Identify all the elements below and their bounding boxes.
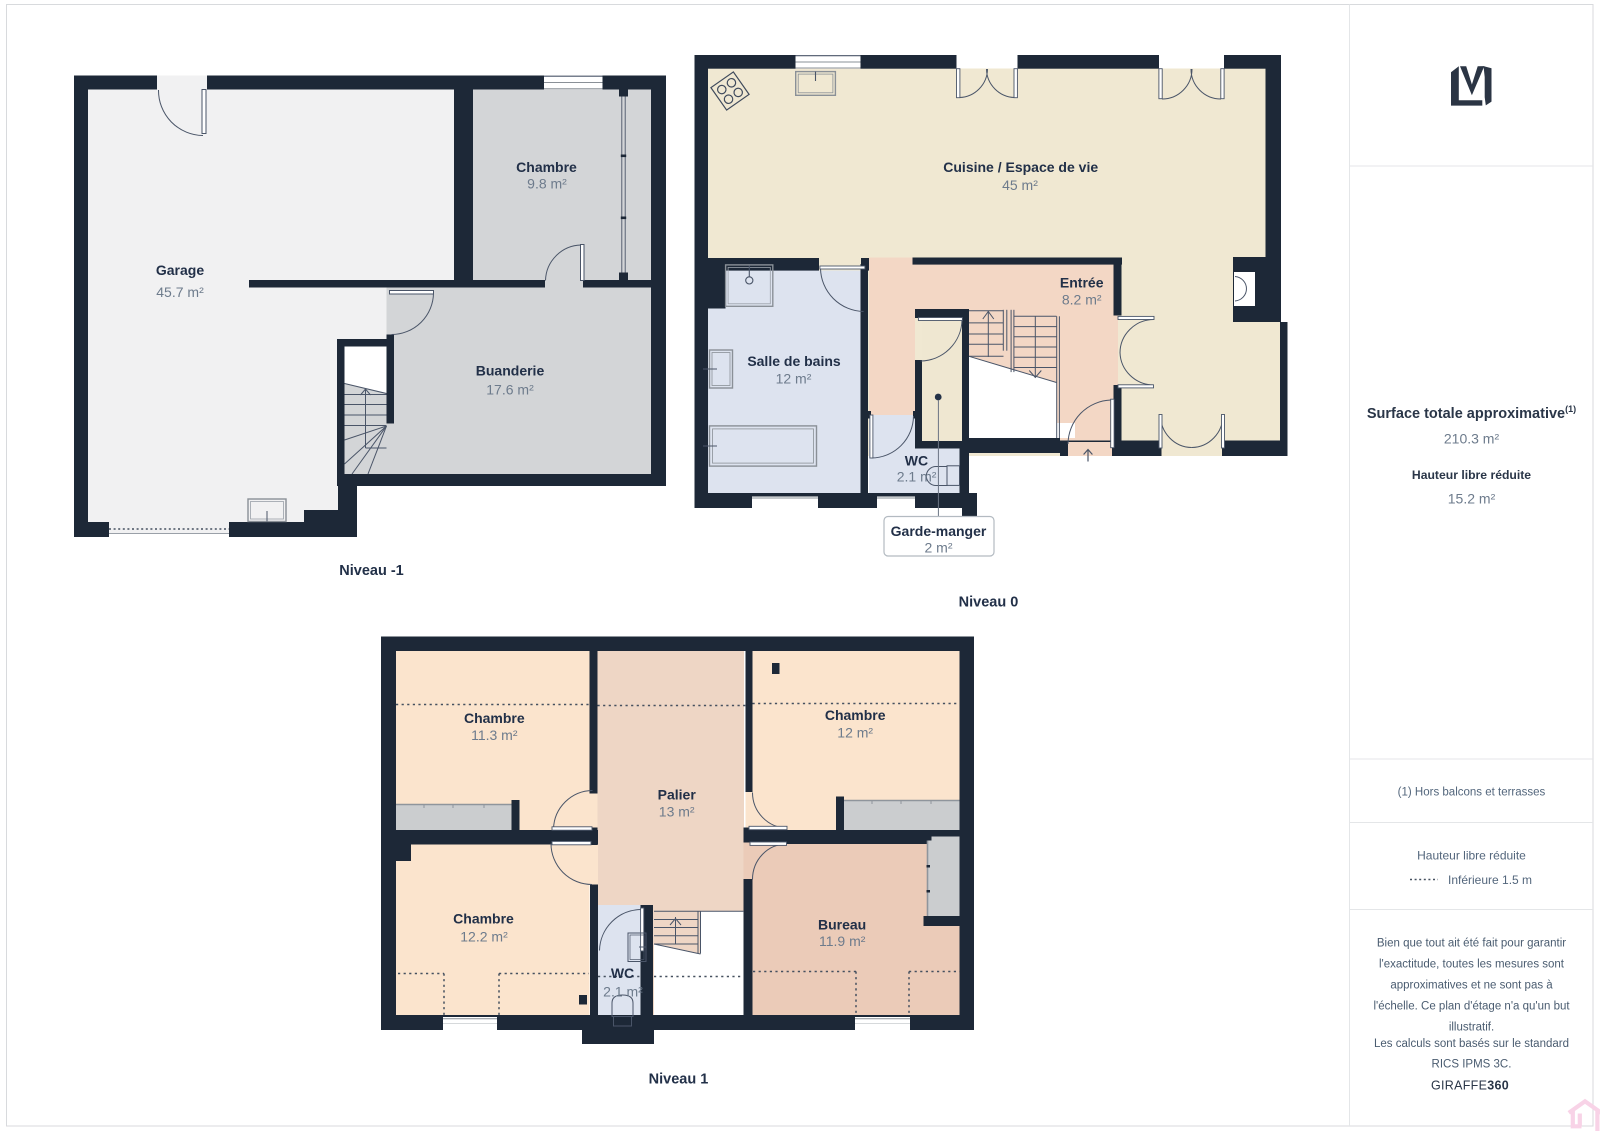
svg-text:Niveau 0: Niveau 0 xyxy=(959,595,1019,611)
svg-text:8.2 m²: 8.2 m² xyxy=(1062,292,1102,308)
svg-text:11.3 m²: 11.3 m² xyxy=(471,727,518,743)
svg-text:Hauteur libre réduite: Hauteur libre réduite xyxy=(1417,849,1526,863)
svg-text:Entrée: Entrée xyxy=(1060,275,1104,291)
svg-text:Bureau: Bureau xyxy=(818,917,866,933)
svg-text:9.8 m²: 9.8 m² xyxy=(527,176,567,192)
svg-text:(1) Hors balcons et terrasses: (1) Hors balcons et terrasses xyxy=(1398,787,1546,799)
svg-text:2 m²: 2 m² xyxy=(925,540,953,556)
svg-text:Buanderie: Buanderie xyxy=(476,363,545,379)
svg-text:2.1 m²: 2.1 m² xyxy=(897,469,937,485)
svg-text:Hauteur libre réduite: Hauteur libre réduite xyxy=(1412,468,1531,482)
svg-text:Niveau 1: Niveau 1 xyxy=(649,1072,709,1088)
svg-text:Chambre: Chambre xyxy=(453,911,514,927)
svg-text:Garage: Garage xyxy=(156,262,204,278)
svg-text:45.7 m²: 45.7 m² xyxy=(156,284,204,300)
svg-text:45 m²: 45 m² xyxy=(1002,177,1038,193)
svg-text:Surface totale approximative(1: Surface totale approximative(1) xyxy=(1367,404,1576,422)
svg-text:WC: WC xyxy=(905,453,928,469)
svg-text:RICS IPMS 3C.: RICS IPMS 3C. xyxy=(1432,1059,1512,1071)
svg-text:illustratif.: illustratif. xyxy=(1449,1022,1494,1034)
svg-text:12 m²: 12 m² xyxy=(837,725,873,741)
svg-text:Chambre: Chambre xyxy=(825,707,886,723)
svg-text:Salle de bains: Salle de bains xyxy=(747,353,841,369)
svg-text:15.2 m²: 15.2 m² xyxy=(1448,491,1496,507)
svg-text:12 m²: 12 m² xyxy=(776,371,812,387)
svg-text:l'échelle. Ce plan d'étage n'a: l'échelle. Ce plan d'étage n'a qu'un but xyxy=(1373,1001,1570,1013)
svg-text:210.3 m²: 210.3 m² xyxy=(1444,431,1500,447)
svg-text:Inférieure 1.5 m: Inférieure 1.5 m xyxy=(1448,873,1532,887)
svg-text:12.2 m²: 12.2 m² xyxy=(460,929,508,945)
svg-text:17.6 m²: 17.6 m² xyxy=(486,382,534,398)
svg-text:Garde-manger: Garde-manger xyxy=(891,523,987,539)
svg-text:GIRAFFE360: GIRAFFE360 xyxy=(1431,1079,1509,1093)
svg-text:approximatives et ne sont pas: approximatives et ne sont pas à xyxy=(1390,980,1553,992)
svg-text:Palier: Palier xyxy=(658,787,697,803)
svg-text:11.9 m²: 11.9 m² xyxy=(819,933,866,949)
svg-text:Chambre: Chambre xyxy=(516,159,577,175)
svg-text:2.1 m²: 2.1 m² xyxy=(603,984,643,1000)
svg-text:Niveau -1: Niveau -1 xyxy=(339,563,403,579)
svg-text:13 m²: 13 m² xyxy=(659,804,695,820)
svg-text:l'exactitude, toutes les mesur: l'exactitude, toutes les mesures sont xyxy=(1379,959,1565,971)
svg-text:Cuisine / Espace de vie: Cuisine / Espace de vie xyxy=(943,159,1098,175)
svg-text:Bien que tout ait été fait pou: Bien que tout ait été fait pour garantir xyxy=(1377,938,1566,950)
svg-text:WC: WC xyxy=(611,965,634,981)
svg-text:Les calculs sont basés sur le: Les calculs sont basés sur le standard xyxy=(1374,1038,1569,1050)
svg-text:Chambre: Chambre xyxy=(464,710,525,726)
